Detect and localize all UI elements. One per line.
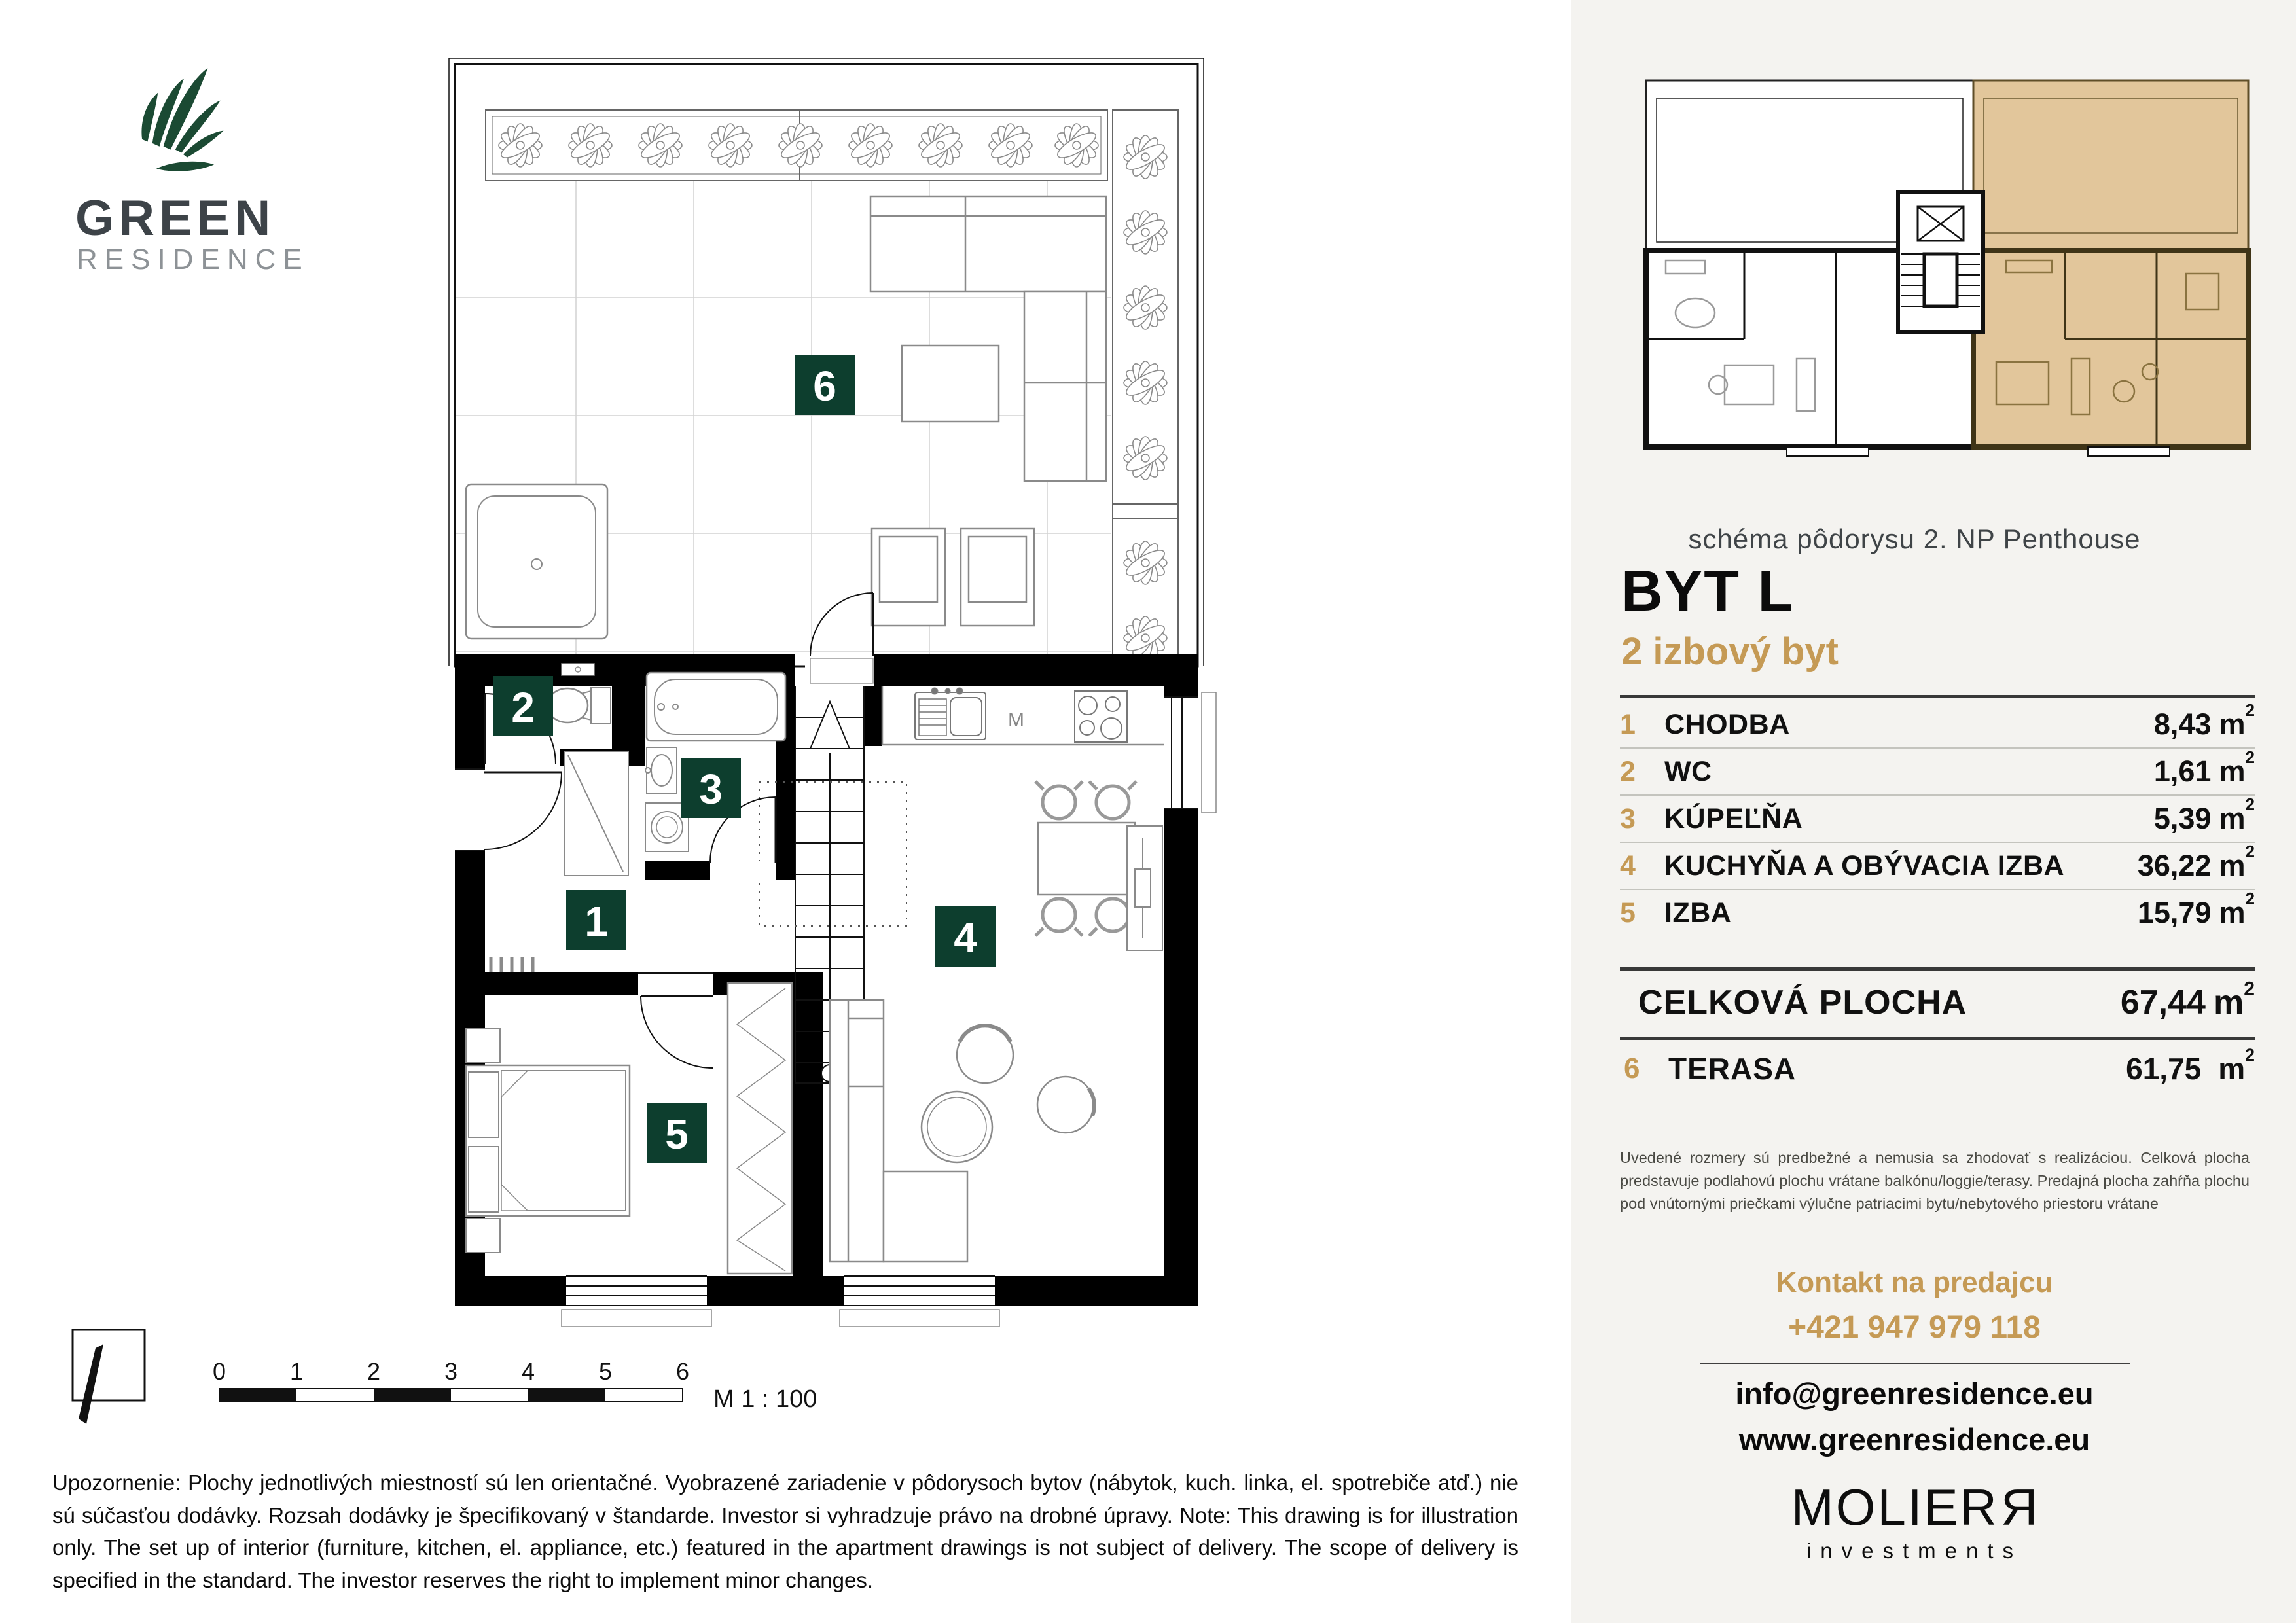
hall-wardrobe xyxy=(564,751,628,876)
main-floorplan-drawing: M xyxy=(419,36,1247,1345)
north-arrow-icon xyxy=(73,1330,145,1424)
tv-board xyxy=(1127,826,1162,950)
radiator xyxy=(491,957,533,972)
room-number: 4 xyxy=(1620,850,1664,882)
window-bottom-living xyxy=(840,1276,999,1327)
room-number: 5 xyxy=(1620,897,1664,929)
svg-text:6: 6 xyxy=(676,1358,689,1385)
room-number: 2 xyxy=(1620,756,1664,788)
unit-subtitle: 2 izbový byt xyxy=(1621,630,1839,673)
room-number: 1 xyxy=(1620,709,1664,741)
divider xyxy=(1620,967,2255,971)
bedroom-door xyxy=(638,973,713,1068)
contact-heading: Kontakt na predajcu xyxy=(1620,1266,2209,1299)
svg-text:4: 4 xyxy=(522,1358,535,1385)
room-area: 5,39 xyxy=(2154,802,2212,835)
room-label: KUCHYŇA A OBÝVACIA IZBA xyxy=(1664,850,2138,882)
stair-elevator-core xyxy=(1898,192,1983,332)
scale-bar-area: 0 1 2 3 4 5 6 M 1 : 100 xyxy=(52,1322,903,1433)
contact-block: Kontakt na predajcu +421 947 979 118 xyxy=(1620,1266,2209,1346)
building-location-minimap xyxy=(1640,58,2258,522)
living-coffee-table xyxy=(922,1092,992,1162)
developer-subtitle: investments xyxy=(1620,1539,2209,1563)
badge-bathroom: 3 xyxy=(699,766,723,813)
room-number: 3 xyxy=(1620,803,1664,835)
logo-wordmark: GREEN xyxy=(75,190,275,247)
bathtub xyxy=(647,673,785,741)
minimap-caption: schéma pôdorysu 2. NP Penthouse xyxy=(1620,524,2209,555)
badge-wc: 2 xyxy=(511,684,535,731)
divider xyxy=(1620,695,2255,698)
area-measurement-note: Uvedené rozmery sú predbežné a nemusia s… xyxy=(1620,1147,2250,1216)
table-row: 1 CHODBA 8,43m2 xyxy=(1620,702,2255,749)
room-label: WC xyxy=(1664,756,2154,788)
room-number: 6 xyxy=(1620,1052,1668,1085)
contact-email[interactable]: info@greenresidence.eu xyxy=(1620,1376,2209,1412)
room-area: 8,43 xyxy=(2154,707,2212,741)
svg-text:1: 1 xyxy=(290,1358,303,1385)
divider xyxy=(1700,1363,2130,1364)
disclaimer-text: Upozornenie: Plochy jednotlivých miestno… xyxy=(52,1467,1518,1596)
badge-bedroom: 5 xyxy=(665,1111,689,1158)
developer-logo: MOLIERR investments xyxy=(1620,1478,2209,1563)
table-row: 3 KÚPEĽŇA 5,39m2 xyxy=(1620,796,2255,843)
total-label: CELKOVÁ PLOCHA xyxy=(1620,983,2121,1022)
table-row: 4 KUCHYŇA A OBÝVACIA IZBA 36,22m2 xyxy=(1620,843,2255,890)
scale-label: M 1 : 100 xyxy=(713,1385,817,1413)
total-area: 67,44 xyxy=(2121,984,2206,1022)
terrace-shower-tray xyxy=(466,484,607,639)
contact-website[interactable]: www.greenresidence.eu xyxy=(1620,1421,2209,1457)
green-residence-leaf-icon xyxy=(134,62,229,183)
unit-title: BYT L xyxy=(1621,558,1794,624)
room-label: KÚPEĽŇA xyxy=(1664,803,2154,835)
room-area: 36,22 xyxy=(2138,849,2212,882)
terrace-coffee-table xyxy=(902,346,999,421)
window-right-living xyxy=(1164,692,1216,813)
table-row: 2 WC 1,61m2 xyxy=(1620,749,2255,796)
contact-phone[interactable]: +421 947 979 118 xyxy=(1620,1310,2209,1346)
terrace-area-row: 6 TERASA 61,75m2 xyxy=(1620,1047,2255,1090)
svg-text:5: 5 xyxy=(599,1358,612,1385)
badge-living: 4 xyxy=(954,914,977,961)
scale-bar: 0 1 2 3 4 5 6 M 1 : 100 xyxy=(213,1358,817,1413)
developer-name: MOLIER xyxy=(1791,1478,1999,1536)
bedroom-wardrobe xyxy=(728,983,792,1274)
svg-text:0: 0 xyxy=(213,1358,226,1385)
divider xyxy=(1620,1037,2255,1040)
svg-text:2: 2 xyxy=(367,1358,380,1385)
kitchen-appliance-label: M xyxy=(1008,709,1024,731)
bed xyxy=(466,1029,630,1253)
logo-wordmark-sub: RESIDENCE xyxy=(77,243,310,276)
room-label: CHODBA xyxy=(1664,709,2154,741)
total-area-row: CELKOVÁ PLOCHA 67,44m2 xyxy=(1620,976,2255,1029)
table-row: 5 IZBA 15,79m2 xyxy=(1620,890,2255,936)
washbasin xyxy=(645,747,677,793)
svg-text:3: 3 xyxy=(444,1358,457,1385)
dining-set xyxy=(1035,781,1136,936)
room-legend-table: 1 CHODBA 8,43m2 2 WC 1,61m2 3 KÚPEĽŇA 5,… xyxy=(1620,702,2255,936)
room-area: 1,61 xyxy=(2154,755,2212,788)
room-area: 61,75 xyxy=(2126,1052,2201,1086)
room-label: IZBA xyxy=(1664,897,2138,929)
window-bottom-bedroom xyxy=(562,1276,711,1327)
room-label: TERASA xyxy=(1668,1051,2126,1086)
entrance-door xyxy=(455,769,562,851)
floorplan-sheet: GREEN RESIDENCE xyxy=(0,0,2296,1623)
badge-hallway: 1 xyxy=(584,898,608,945)
room-area: 15,79 xyxy=(2138,896,2212,929)
badge-terrace: 6 xyxy=(813,363,836,410)
developer-flipped-r: R xyxy=(1999,1478,2037,1537)
